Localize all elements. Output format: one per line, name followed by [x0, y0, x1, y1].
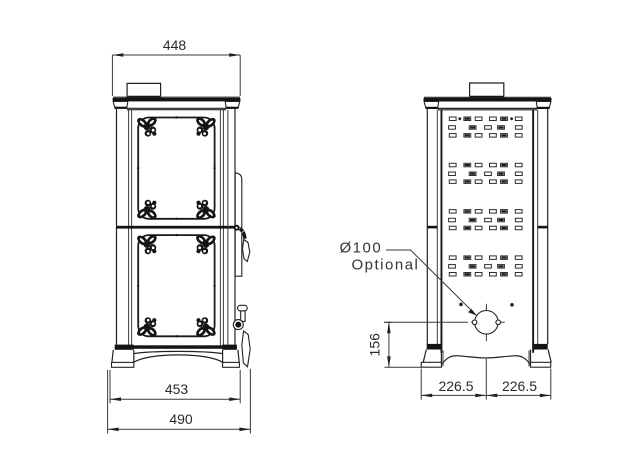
svg-text:Ø100: Ø100 — [340, 239, 383, 256]
svg-text:Optional: Optional — [352, 257, 420, 274]
svg-text:156: 156 — [367, 333, 383, 357]
svg-text:226.5: 226.5 — [502, 378, 537, 394]
svg-text:453: 453 — [165, 381, 189, 397]
svg-text:226.5: 226.5 — [438, 378, 473, 394]
svg-text:448: 448 — [163, 37, 187, 53]
svg-text:490: 490 — [169, 411, 193, 427]
